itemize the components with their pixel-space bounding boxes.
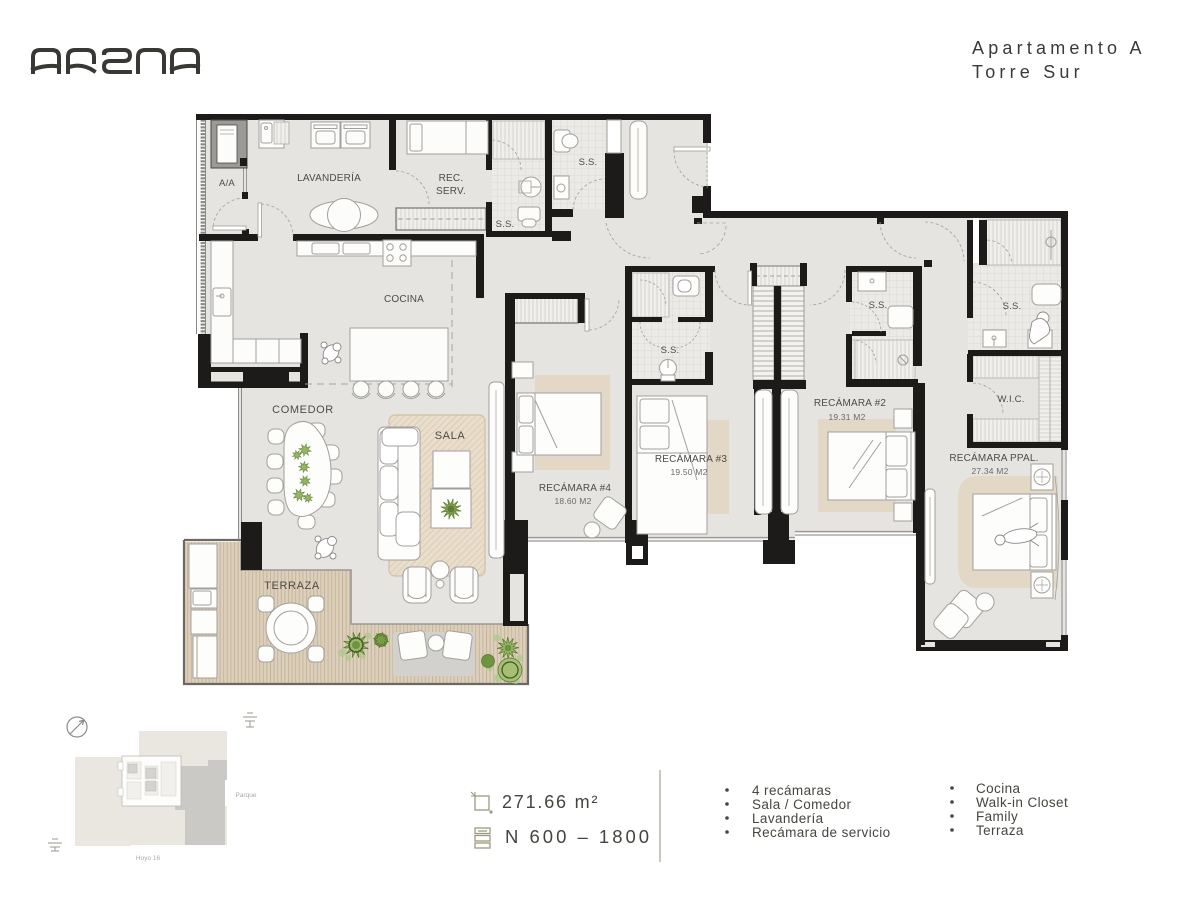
svg-text:S.S.: S.S. <box>496 219 515 230</box>
svg-text:N 600 – 1800: N 600 – 1800 <box>505 826 652 847</box>
svg-text:RECÁMARA #4: RECÁMARA #4 <box>539 481 611 494</box>
svg-text:S.S.: S.S. <box>579 157 598 168</box>
svg-text:RECÁMARA PPAL.: RECÁMARA PPAL. <box>949 451 1038 464</box>
svg-text:S.S.: S.S. <box>661 345 680 356</box>
svg-text:S.S.: S.S. <box>1003 301 1022 312</box>
svg-text:RECÁMARA #2: RECÁMARA #2 <box>814 396 886 409</box>
svg-text:COCINA: COCINA <box>384 294 424 305</box>
svg-text:4 recámaras: 4 recámaras <box>752 783 831 798</box>
svg-text:REC.: REC. <box>439 173 464 184</box>
svg-text:TERRAZA: TERRAZA <box>264 580 320 592</box>
svg-text:Terraza: Terraza <box>976 823 1024 838</box>
svg-text:27.34 M2: 27.34 M2 <box>971 466 1008 476</box>
svg-text:Parque: Parque <box>236 792 257 799</box>
svg-text:RECÁMARA #3: RECÁMARA #3 <box>655 452 727 465</box>
svg-text:SALA: SALA <box>435 430 466 442</box>
svg-text:Sala / Comedor: Sala / Comedor <box>752 797 851 812</box>
svg-text:Walk-in Closet: Walk-in Closet <box>976 795 1068 810</box>
svg-text:Apartamento A: Apartamento A <box>972 38 1146 58</box>
svg-text:Torre Sur: Torre Sur <box>972 62 1084 82</box>
svg-text:19.50 M2: 19.50 M2 <box>670 467 707 477</box>
svg-text:Family: Family <box>976 809 1018 824</box>
svg-text:18.60 M2: 18.60 M2 <box>554 496 591 506</box>
svg-text:A/A: A/A <box>219 178 235 189</box>
svg-text:LAVANDERÍA: LAVANDERÍA <box>297 171 361 184</box>
svg-text:19.31 M2: 19.31 M2 <box>828 412 865 422</box>
svg-text:Hoyo 16: Hoyo 16 <box>136 855 161 862</box>
svg-text:S.S.: S.S. <box>869 300 888 311</box>
svg-text:SERV.: SERV. <box>436 186 466 197</box>
svg-text:Cocina: Cocina <box>976 781 1021 796</box>
svg-text:Recámara de servicio: Recámara de servicio <box>752 825 891 840</box>
svg-text:Lavandería: Lavandería <box>752 811 824 826</box>
svg-text:W.I.C.: W.I.C. <box>997 394 1024 405</box>
svg-text:COMEDOR: COMEDOR <box>272 404 334 416</box>
svg-text:271.66 m²: 271.66 m² <box>502 792 599 812</box>
